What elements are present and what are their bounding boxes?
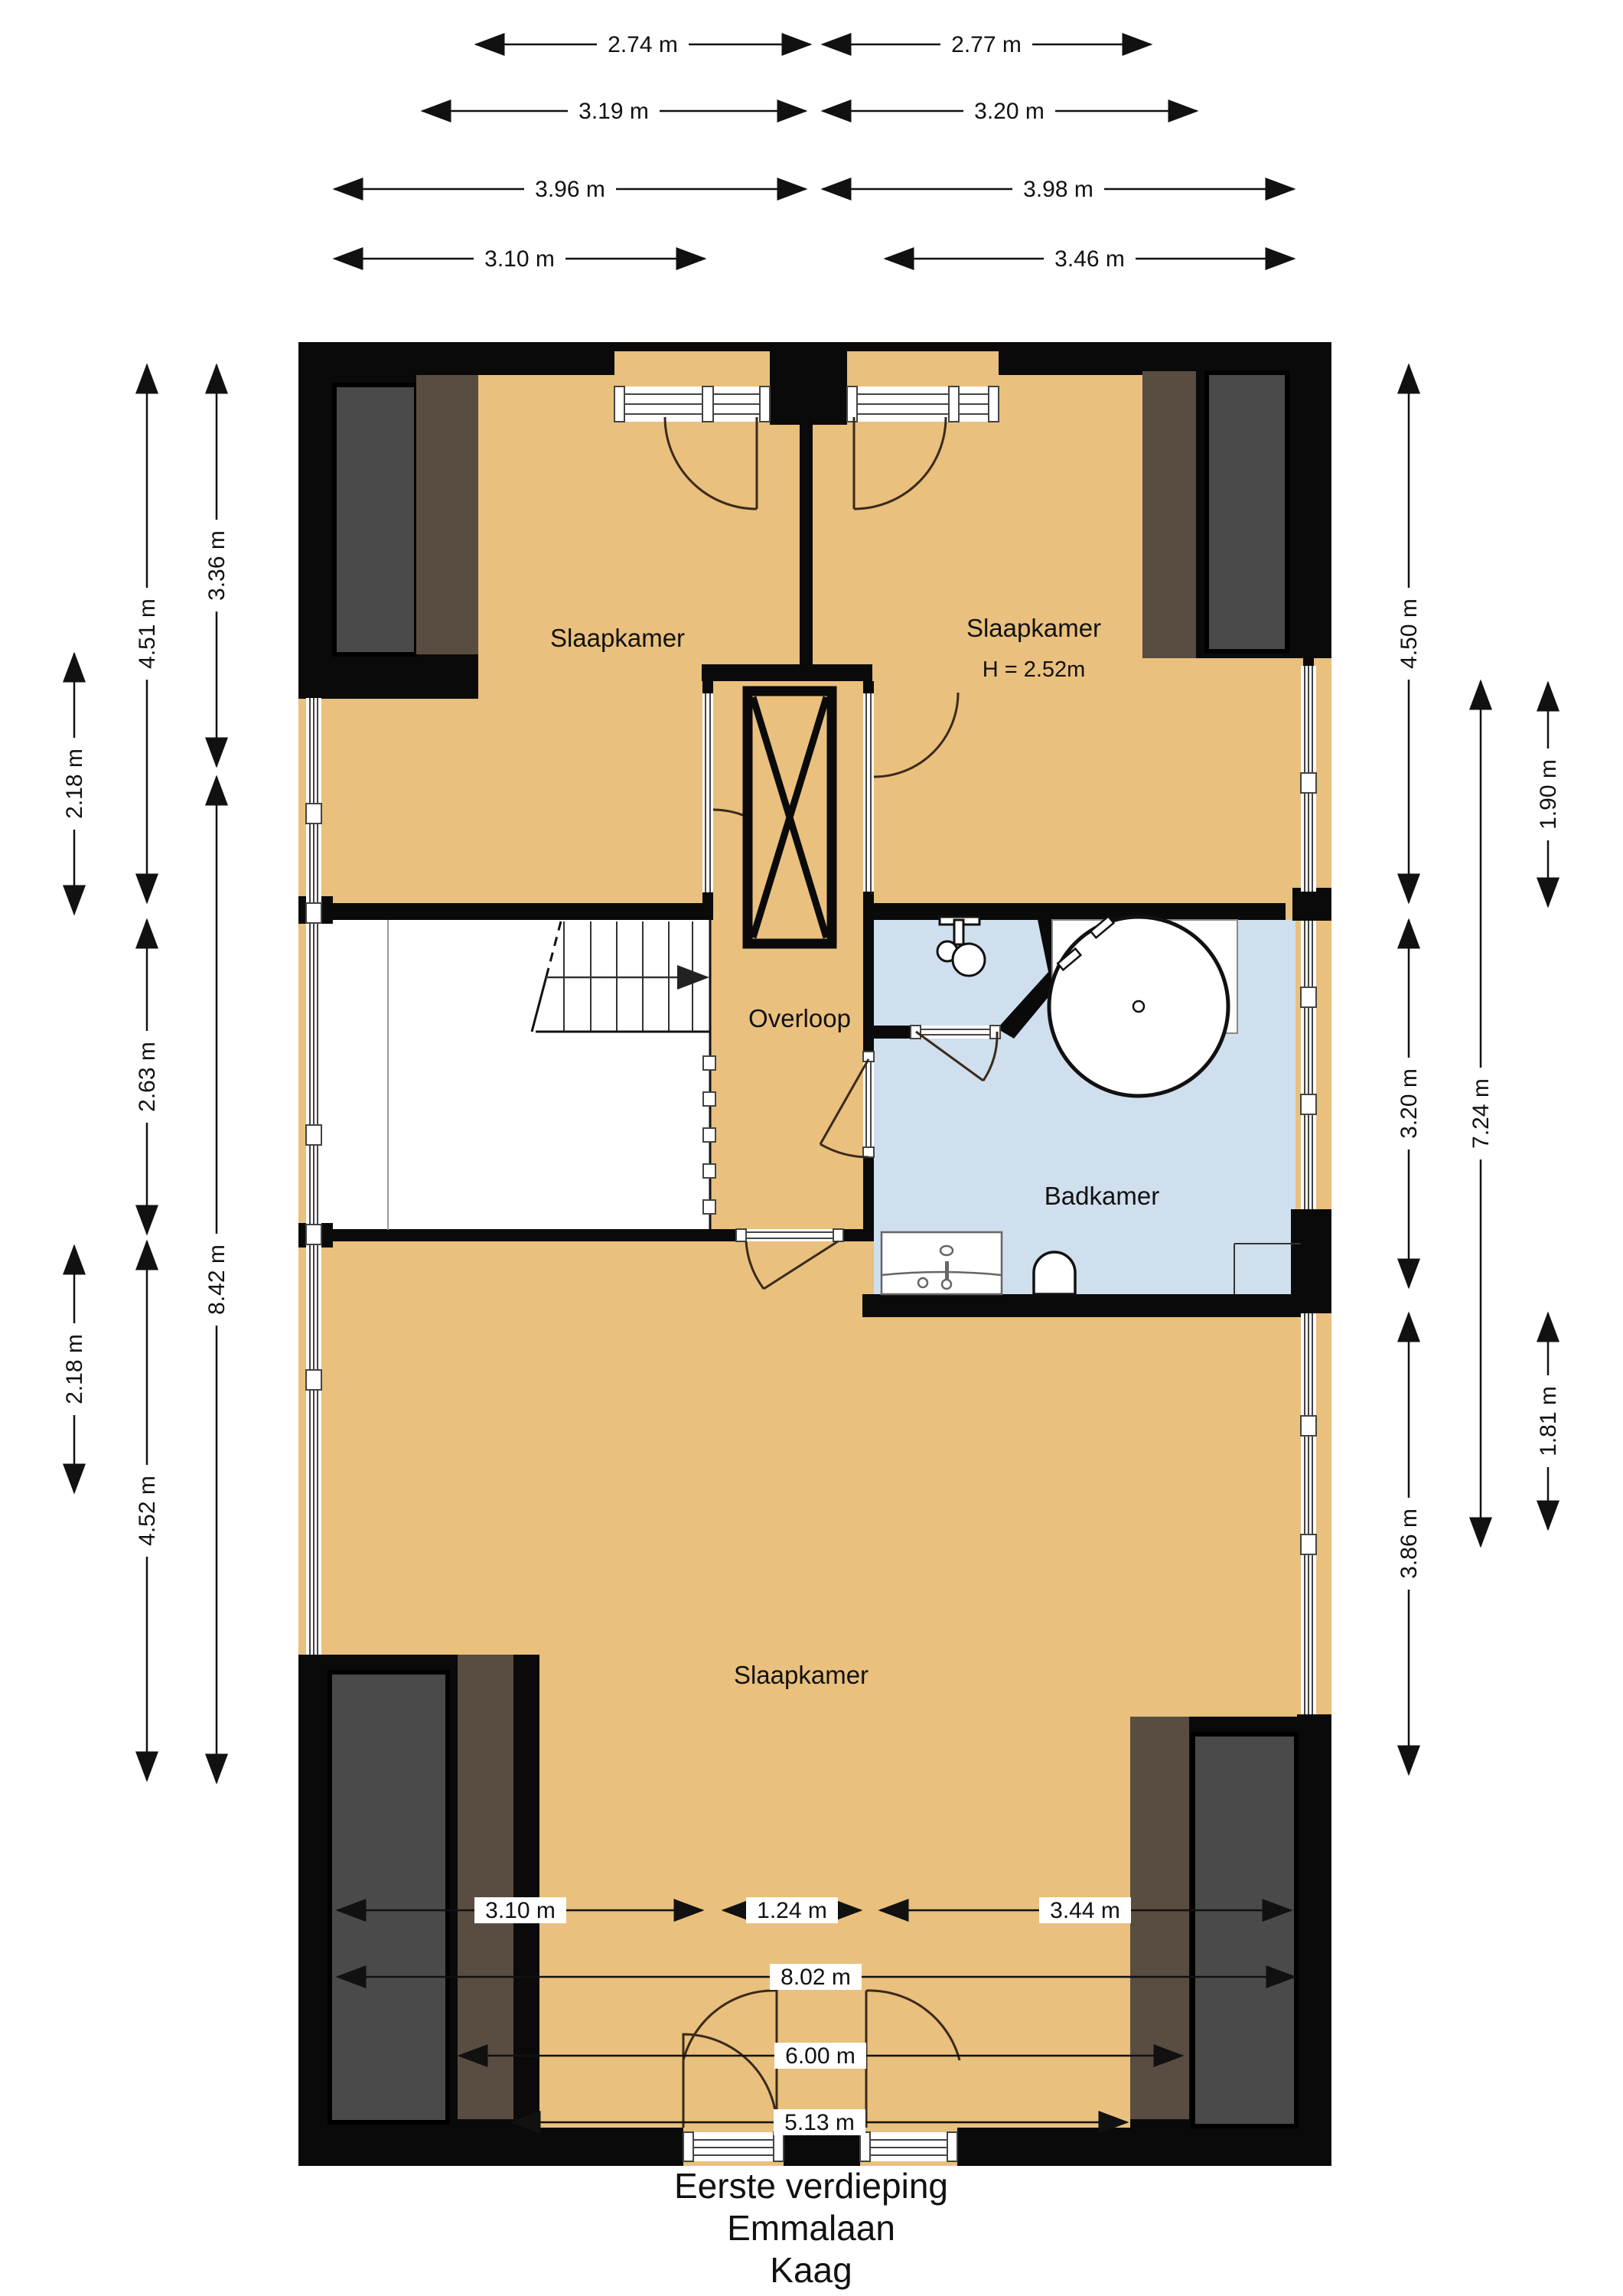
window-left-wall xyxy=(306,698,321,1655)
dormer-bottomleft-shade xyxy=(458,1655,513,2119)
dim-right-5: 1.81 m xyxy=(1535,1313,1561,1529)
dormer-bottomright-inner xyxy=(1193,1734,1296,2126)
wall-divider-void xyxy=(308,903,712,920)
wall-landing-bottom xyxy=(308,1229,736,1241)
dim-left-1: 2.18 m xyxy=(61,1246,87,1492)
svg-text:3.10 m: 3.10 m xyxy=(485,1898,556,1923)
toilet-icon xyxy=(1034,1252,1075,1294)
wall-bathroom-bottom xyxy=(862,1294,1303,1317)
door-sill-corridor-left xyxy=(702,693,713,892)
wall-corridor-left-low xyxy=(702,892,713,920)
svg-text:2.18 m: 2.18 m xyxy=(62,1334,87,1404)
dim-left-5: 3.36 m xyxy=(204,365,230,766)
svg-text:3.96 m: 3.96 m xyxy=(535,177,605,202)
svg-text:3.20 m: 3.20 m xyxy=(974,99,1045,124)
plan-geometry: Slaapkamer Slaapkamer H = 2.52m Overloop… xyxy=(298,342,1331,2166)
wall-bottom-right xyxy=(957,2128,1331,2166)
svg-text:7.24 m: 7.24 m xyxy=(1468,1078,1494,1149)
dormer-topleft-inner xyxy=(334,385,416,654)
wall-right-pier-mid xyxy=(1292,888,1331,921)
door-sill-landing-bedroom xyxy=(736,1229,843,1241)
dormer-bottomleft-inner xyxy=(330,1672,448,2122)
svg-text:2.18 m: 2.18 m xyxy=(62,748,87,819)
dim-left-6: 8.42 m xyxy=(204,777,230,1782)
dim-top-1: 2.77 m xyxy=(823,31,1151,57)
plan-title: Eerste verdieping Emmalaan Kaag xyxy=(674,2166,948,2290)
svg-text:3.86 m: 3.86 m xyxy=(1396,1508,1422,1579)
window-top-right xyxy=(847,386,999,422)
washbasin-knob xyxy=(918,1278,927,1287)
svg-text:3.19 m: 3.19 m xyxy=(578,99,649,124)
dim-right-4: 1.90 m xyxy=(1535,683,1561,906)
door-sill-corridor-right xyxy=(863,693,874,892)
svg-text:1.81 m: 1.81 m xyxy=(1536,1386,1561,1456)
svg-text:8.42 m: 8.42 m xyxy=(204,1244,230,1315)
dim-top-2: 3.19 m xyxy=(422,98,806,124)
label-landing: Overloop xyxy=(748,1004,851,1032)
dim-left-2: 4.51 m xyxy=(134,365,160,902)
label-bedroom-top-right: Slaapkamer xyxy=(966,614,1101,642)
wall-landing-right-upper xyxy=(863,892,874,1052)
title-line-city: Kaag xyxy=(770,2250,852,2290)
wall-shaft-top xyxy=(702,664,872,681)
wall-bathroom-top xyxy=(874,903,1286,920)
svg-text:2.74 m: 2.74 m xyxy=(608,32,678,57)
dim-top-5: 3.98 m xyxy=(823,176,1294,202)
stairwell-void xyxy=(321,920,710,1230)
dormer-bottomright-shade xyxy=(1130,1717,1189,2119)
dim-top-3: 3.20 m xyxy=(823,98,1197,124)
wall-bottom-left xyxy=(298,2128,683,2166)
wall-central xyxy=(800,422,813,667)
dim-top-4: 3.96 m xyxy=(334,176,806,202)
dim-left-4: 4.52 m xyxy=(134,1241,160,1780)
title-line-floor: Eerste verdieping xyxy=(674,2166,948,2206)
dormer-topright-shade xyxy=(1142,371,1196,658)
dormer-topleft-shade xyxy=(416,375,478,654)
dim-top-7: 3.46 m xyxy=(885,246,1294,272)
svg-text:2.63 m: 2.63 m xyxy=(135,1042,160,1112)
svg-text:1.24 m: 1.24 m xyxy=(757,1898,827,1923)
svg-text:2.77 m: 2.77 m xyxy=(951,32,1022,57)
dim-left-0: 2.18 m xyxy=(61,654,87,914)
svg-text:4.52 m: 4.52 m xyxy=(135,1476,160,1546)
shaft-flue xyxy=(748,691,832,944)
svg-text:3.36 m: 3.36 m xyxy=(204,530,230,601)
wall-landing-bottom-right xyxy=(843,1229,874,1241)
title-line-street: Emmalaan xyxy=(727,2208,895,2248)
label-bedroom-bottom: Slaapkamer xyxy=(734,1661,869,1689)
label-bathroom: Badkamer xyxy=(1045,1182,1159,1210)
wall-shower-closet xyxy=(874,1026,911,1039)
dimensions-right: 4.50 m 3.20 m 3.86 m 7.24 m 1.90 m 1.81 … xyxy=(1396,365,1561,1774)
svg-text:3.10 m: 3.10 m xyxy=(484,246,555,272)
washbasin-tap-base xyxy=(942,1280,951,1289)
label-bedroom-top-right-height: H = 2.52m xyxy=(983,657,1086,682)
dim-top-0: 2.74 m xyxy=(476,31,810,57)
dormer-topright-inner xyxy=(1207,373,1287,651)
dimensions-left: 2.18 m 2.18 m 4.51 m 2.63 m 4.52 m 3.36 … xyxy=(61,365,230,1782)
floorplan-drawing: Slaapkamer Slaapkamer H = 2.52m Overloop… xyxy=(0,0,1623,2296)
dim-top-6: 3.10 m xyxy=(334,246,705,272)
window-right-wall-upper xyxy=(1301,666,1316,892)
floorplan-page: Slaapkamer Slaapkamer H = 2.52m Overloop… xyxy=(0,0,1623,2296)
window-right-wall-lower xyxy=(1301,1313,1316,1714)
wall-top-center-pier xyxy=(770,342,847,425)
svg-text:3.44 m: 3.44 m xyxy=(1050,1898,1120,1923)
shower-head-icon xyxy=(953,944,985,976)
svg-text:6.00 m: 6.00 m xyxy=(785,2043,855,2069)
window-bottom-left-door xyxy=(683,2132,784,2161)
dim-right-0: 4.50 m xyxy=(1396,365,1422,902)
bathtub-drain xyxy=(1133,1001,1144,1012)
svg-text:1.90 m: 1.90 m xyxy=(1536,759,1561,830)
dim-right-1: 3.20 m xyxy=(1396,920,1422,1287)
svg-text:5.13 m: 5.13 m xyxy=(784,2110,855,2135)
svg-text:3.20 m: 3.20 m xyxy=(1396,1068,1422,1139)
label-bedroom-top-left: Slaapkamer xyxy=(550,624,685,652)
svg-text:3.46 m: 3.46 m xyxy=(1054,246,1125,272)
window-bottom-right-door xyxy=(860,2132,957,2161)
dim-right-2: 3.86 m xyxy=(1396,1313,1422,1774)
wall-corridor-right-post xyxy=(863,681,874,693)
svg-text:3.98 m: 3.98 m xyxy=(1023,177,1093,202)
svg-text:4.51 m: 4.51 m xyxy=(135,598,160,669)
dim-left-3: 2.63 m xyxy=(134,920,160,1234)
svg-text:4.50 m: 4.50 m xyxy=(1396,598,1422,669)
washbasin-drain xyxy=(940,1246,953,1255)
wall-landing-right-lower xyxy=(863,1157,874,1231)
dimensions-top: 2.74 m 2.77 m 3.19 m 3.20 m 3.96 m 3.98 … xyxy=(334,31,1294,272)
washbasin-tap xyxy=(945,1261,949,1281)
wall-top-left xyxy=(478,342,614,375)
window-top-left xyxy=(614,386,770,422)
window-right-wall-bathroom xyxy=(1301,921,1316,1209)
dim-right-3: 7.24 m xyxy=(1468,681,1494,1546)
wall-top-right xyxy=(999,342,1142,375)
shower-pipe xyxy=(954,920,963,944)
wall-corridor-left-post xyxy=(702,681,713,693)
svg-text:8.02 m: 8.02 m xyxy=(781,1965,851,1990)
